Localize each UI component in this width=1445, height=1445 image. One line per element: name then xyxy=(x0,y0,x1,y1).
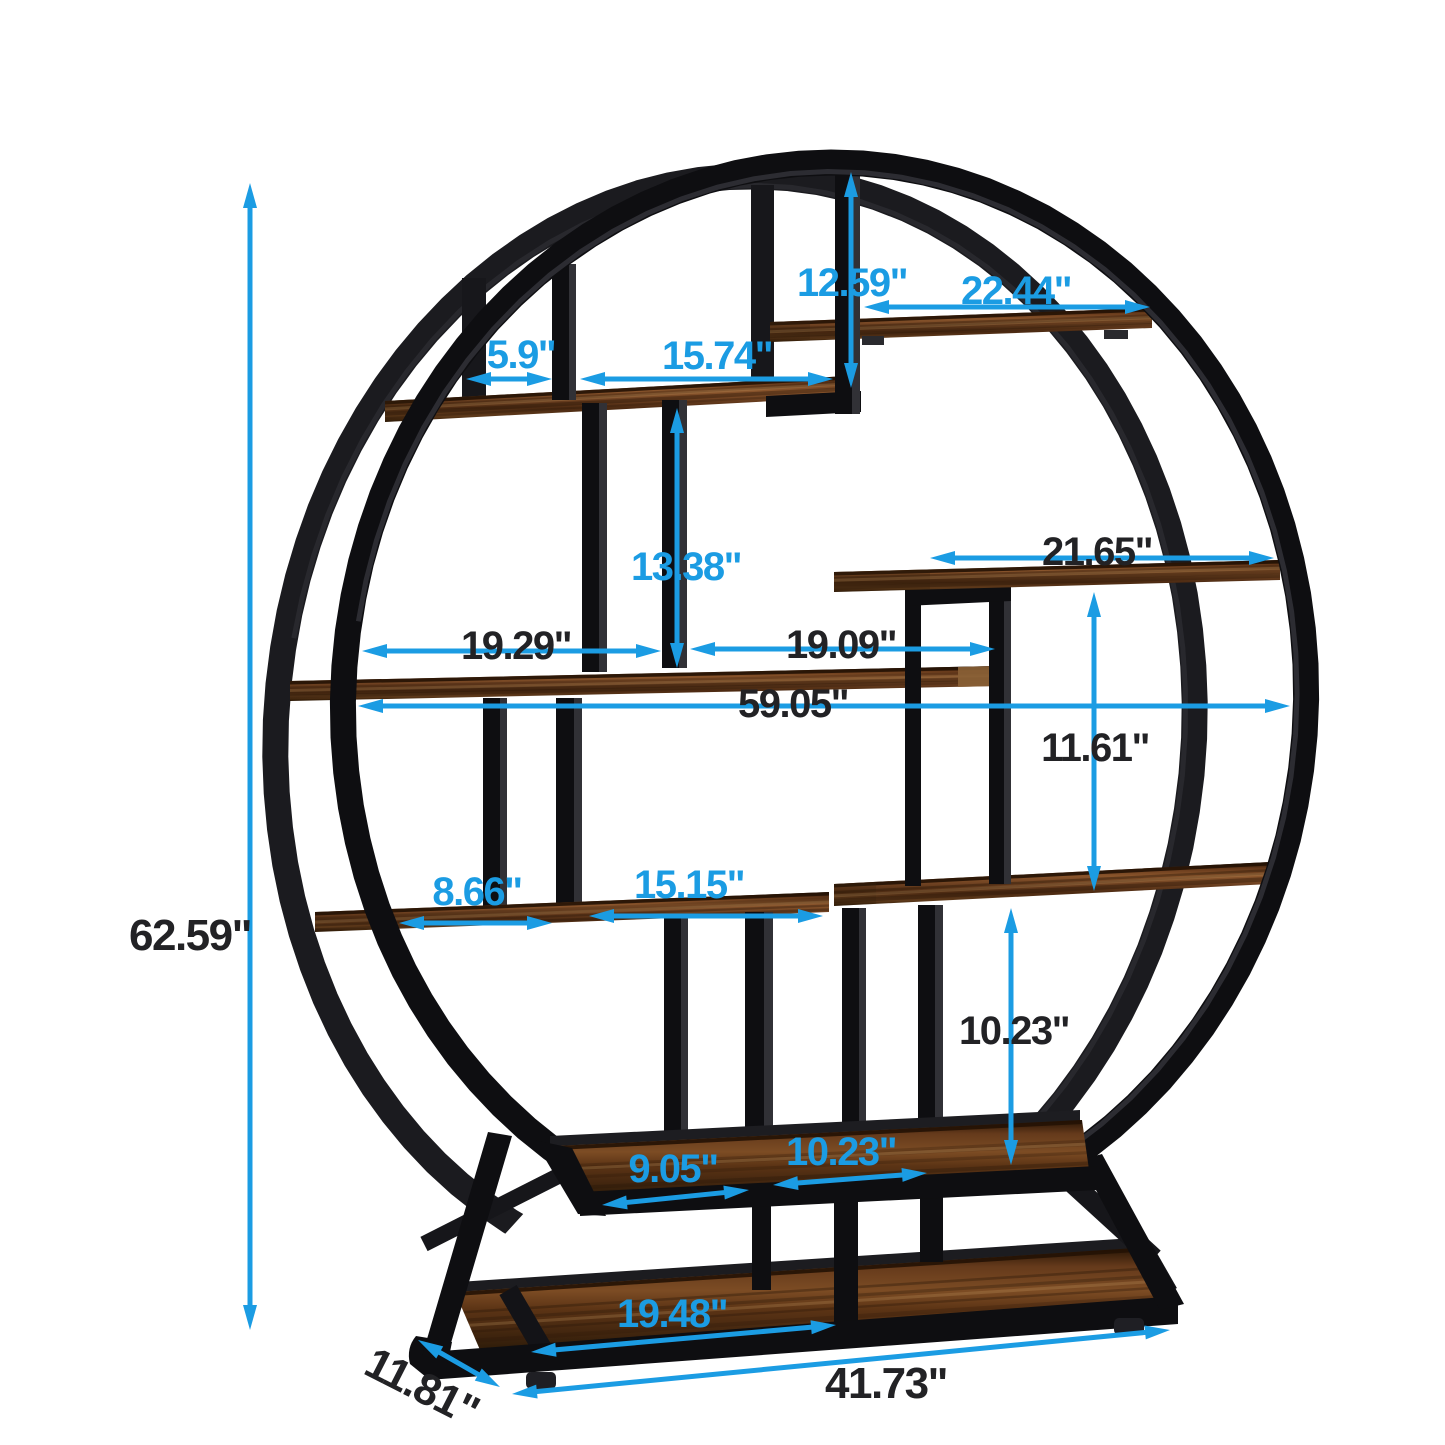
svg-text:13.38": 13.38" xyxy=(631,545,741,589)
svg-text:41.73": 41.73" xyxy=(825,1359,947,1408)
svg-text:59.05": 59.05" xyxy=(738,682,848,726)
svg-text:19.29": 19.29" xyxy=(461,624,571,668)
svg-text:10.23": 10.23" xyxy=(959,1009,1069,1053)
svg-text:62.59": 62.59" xyxy=(129,911,251,960)
svg-text:21.65": 21.65" xyxy=(1042,530,1152,574)
svg-text:12.59": 12.59" xyxy=(797,261,907,305)
svg-text:22.44": 22.44" xyxy=(961,269,1071,313)
svg-text:10.23": 10.23" xyxy=(786,1130,896,1174)
svg-text:19.48": 19.48" xyxy=(617,1292,727,1336)
svg-text:19.09": 19.09" xyxy=(786,623,896,667)
svg-text:9.05": 9.05" xyxy=(628,1147,717,1191)
svg-text:15.15": 15.15" xyxy=(634,863,744,907)
svg-text:5.9": 5.9" xyxy=(487,333,556,377)
svg-text:15.74": 15.74" xyxy=(662,334,772,378)
svg-text:11.61": 11.61" xyxy=(1041,726,1149,770)
svg-text:8.66": 8.66" xyxy=(432,870,521,914)
